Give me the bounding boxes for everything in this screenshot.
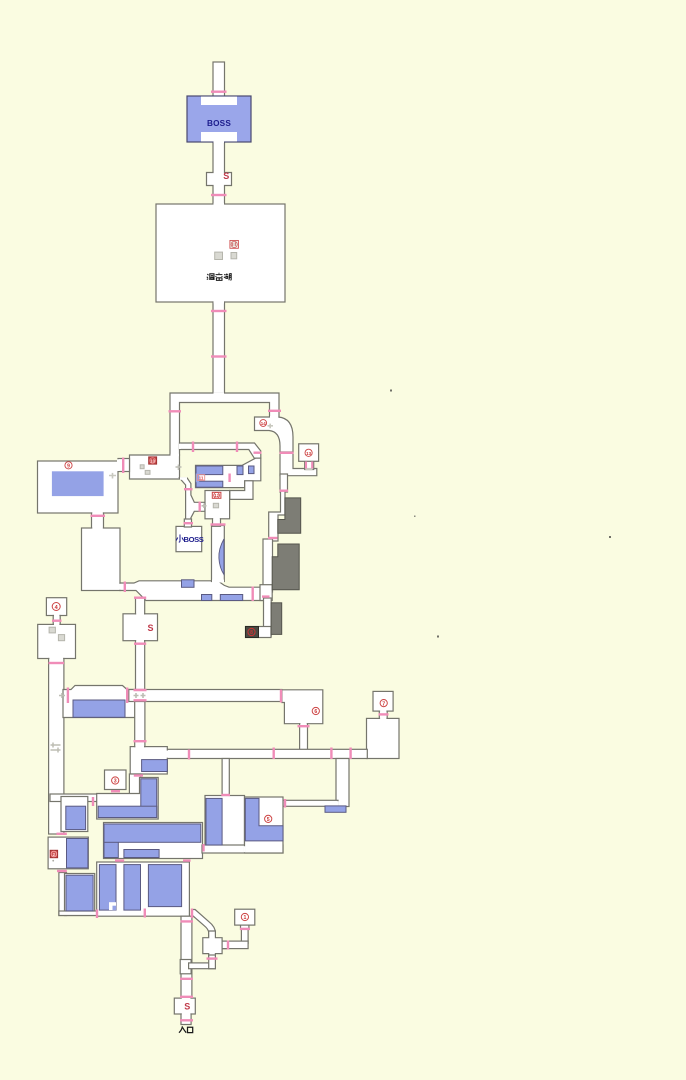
svg-text:3: 3 bbox=[114, 779, 117, 785]
svg-text:7: 7 bbox=[382, 701, 385, 707]
svg-text:BOSS: BOSS bbox=[184, 535, 204, 544]
svg-text:S: S bbox=[223, 171, 229, 181]
svg-text:11: 11 bbox=[199, 476, 204, 481]
svg-text:S: S bbox=[184, 1002, 190, 1012]
svg-text:14: 14 bbox=[261, 421, 266, 426]
svg-text:13: 13 bbox=[306, 451, 311, 456]
svg-text:6: 6 bbox=[314, 709, 317, 715]
svg-text:8: 8 bbox=[250, 630, 253, 636]
svg-text:12: 12 bbox=[214, 493, 219, 498]
svg-text:BOSS: BOSS bbox=[207, 119, 231, 128]
svg-text:1: 1 bbox=[243, 915, 246, 921]
svg-text:10: 10 bbox=[150, 458, 155, 463]
svg-text:S: S bbox=[147, 623, 153, 633]
svg-text:9: 9 bbox=[67, 463, 70, 469]
svg-text:5: 5 bbox=[267, 817, 270, 823]
